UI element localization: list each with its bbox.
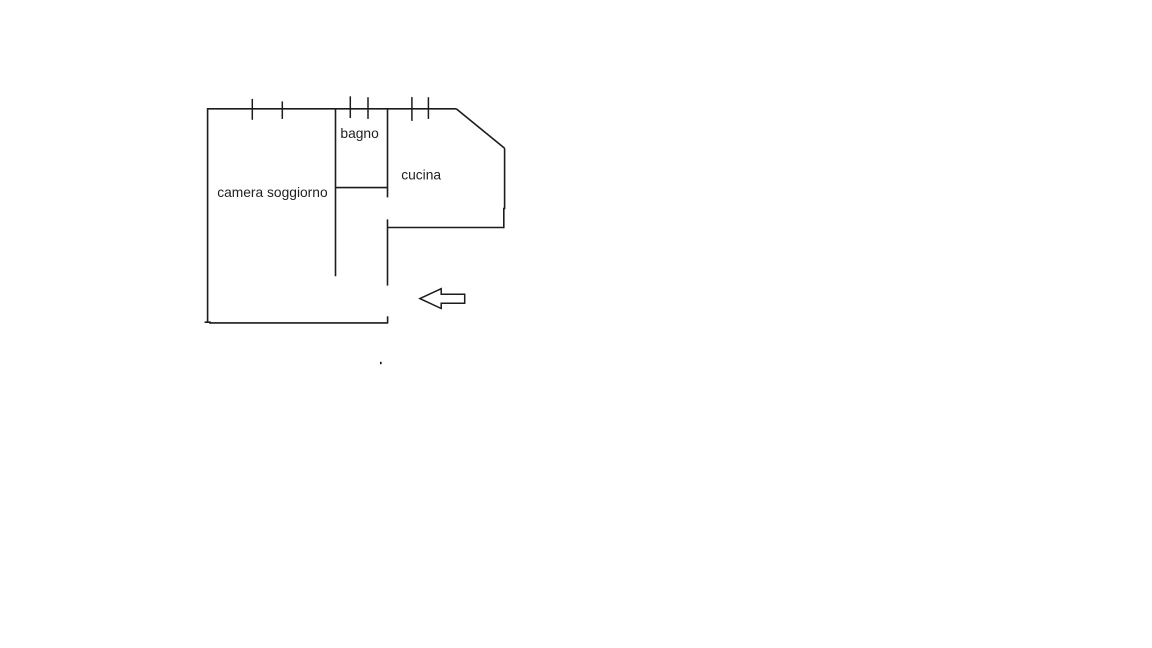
svg-text:cucina: cucina <box>401 167 441 182</box>
svg-text:bagno: bagno <box>340 126 379 141</box>
svg-text:camera soggiorno: camera soggiorno <box>217 185 328 200</box>
